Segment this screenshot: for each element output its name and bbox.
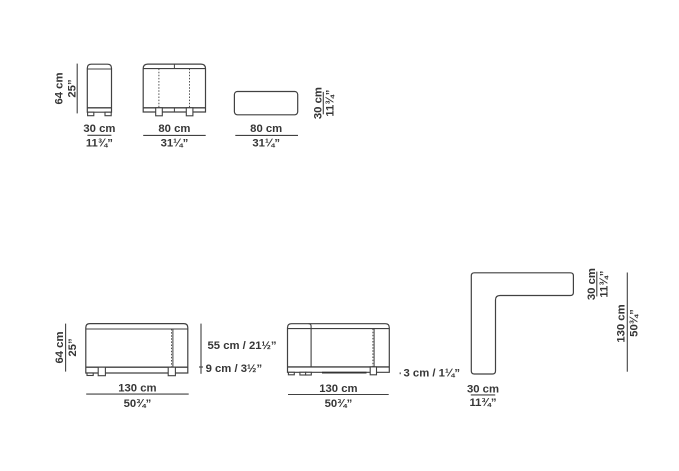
svg-text:30 cm: 30 cm <box>83 123 115 135</box>
svg-text:11¾”: 11¾” <box>325 90 337 117</box>
svg-text:130 cm: 130 cm <box>118 382 156 394</box>
svg-text:31¼”: 31¼” <box>161 138 189 150</box>
svg-text:50¾”: 50¾” <box>124 398 152 410</box>
svg-text:31¼”: 31¼” <box>252 138 280 150</box>
svg-text:55 cm / 21½”: 55 cm / 21½” <box>208 340 277 352</box>
svg-text:11¾”: 11¾” <box>469 397 496 409</box>
svg-text:3 cm / 1¼”: 3 cm / 1¼” <box>404 367 461 379</box>
svg-text:50¾”: 50¾” <box>629 309 641 337</box>
svg-text:80 cm: 80 cm <box>158 123 190 135</box>
svg-text:64 cm: 64 cm <box>54 331 66 363</box>
svg-text:11¾”: 11¾” <box>86 137 113 149</box>
svg-text:11¾”: 11¾” <box>598 271 610 298</box>
svg-text:9 cm / 3½”: 9 cm / 3½” <box>206 363 263 375</box>
svg-text:25”: 25” <box>67 338 79 356</box>
svg-text:130 cm: 130 cm <box>319 383 357 395</box>
svg-text:30 cm: 30 cm <box>312 87 324 119</box>
svg-text:30 cm: 30 cm <box>586 268 598 300</box>
svg-text:50¾”: 50¾” <box>325 398 353 410</box>
svg-text:80 cm: 80 cm <box>250 123 282 135</box>
svg-text:64 cm: 64 cm <box>54 72 66 104</box>
svg-text:130 cm: 130 cm <box>616 304 628 342</box>
svg-text:25”: 25” <box>67 79 79 97</box>
svg-text:30 cm: 30 cm <box>467 383 499 395</box>
